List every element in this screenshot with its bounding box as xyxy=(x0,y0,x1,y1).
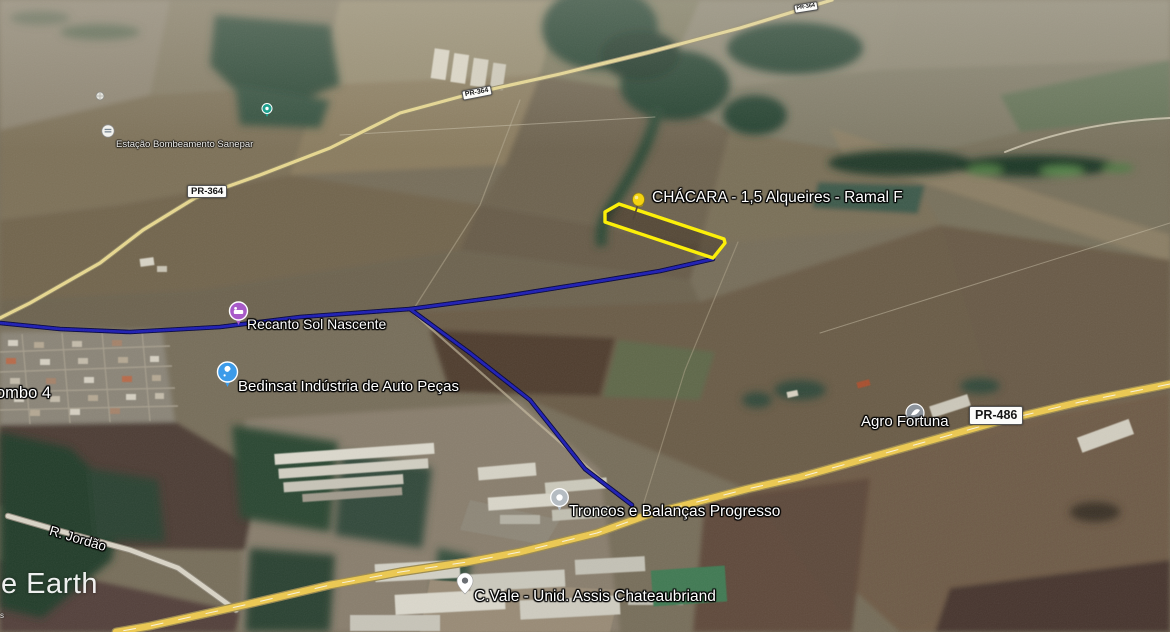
small-teal-poi-icon[interactable] xyxy=(261,103,273,118)
auto-parts-icon[interactable] xyxy=(216,361,239,388)
parcel-placemark-label[interactable]: CHÁCARA - 1,5 Alqueires - Ramal F xyxy=(652,189,903,207)
pump-station-icon[interactable] xyxy=(101,124,115,138)
satellite-imagery[interactable] xyxy=(0,0,1170,632)
lodging-icon[interactable] xyxy=(228,301,249,326)
map-pin-icon[interactable] xyxy=(456,572,474,595)
poi-dot-icon[interactable] xyxy=(549,488,570,512)
atmosphere-haze xyxy=(0,0,1170,150)
road-shield-pr486: PR-486 xyxy=(969,406,1023,425)
town-label-fragment: ombo 4 xyxy=(0,384,51,403)
road-shield-pr364-left: PR-364 xyxy=(187,185,227,198)
google-earth-viewport[interactable]: Estação Bombeamento Sanepar Recanto Sol … xyxy=(0,0,1170,632)
place-label-bedinsat[interactable]: Bedinsat Indústria de Auto Peças xyxy=(238,378,459,395)
place-label-recanto-sol-nascente[interactable]: Recanto Sol Nascente xyxy=(247,316,386,332)
place-label-troncos-balancas[interactable]: Troncos e Balanças Progresso xyxy=(569,503,780,521)
place-label-estacao-bombeamento[interactable]: Estação Bombeamento Sanepar xyxy=(116,139,253,150)
small-gray-poi-icon[interactable] xyxy=(95,91,105,101)
place-label-cvale[interactable]: C.Vale - Unid. Assis Chateaubriand xyxy=(474,588,716,606)
place-label-agro-fortuna[interactable]: Agro Fortuna xyxy=(861,413,949,430)
google-earth-watermark: e Earth xyxy=(1,568,98,601)
attribution-fragment: s xyxy=(0,611,4,620)
